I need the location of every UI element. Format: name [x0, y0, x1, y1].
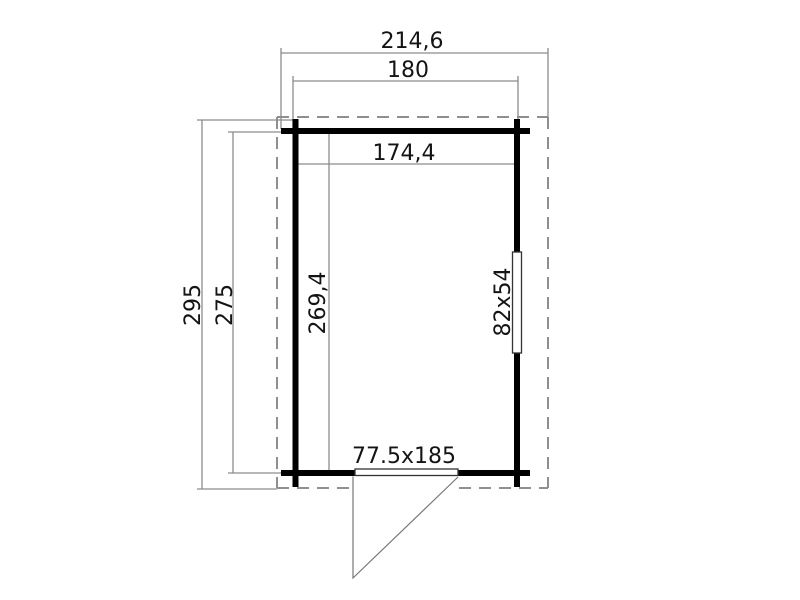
drawing-canvas: 214,6 180 174,4 295 275 269,4 82x54 77.5… [0, 0, 800, 600]
dim-label-wall-depth: 275 [213, 284, 238, 326]
dim-label-inner-depth: 269,4 [306, 272, 331, 335]
door [353, 469, 458, 578]
dim-label-wall-width: 180 [387, 58, 429, 83]
dim-label-door-size: 77.5x185 [352, 444, 456, 469]
dim-label-overall-depth: 295 [181, 284, 206, 326]
dim-label-overall-width: 214,6 [381, 29, 444, 54]
dimension-labels: 214,6 180 174,4 295 275 269,4 82x54 77.5… [181, 29, 516, 469]
door-swing [353, 477, 458, 579]
floor-plan-drawing: 214,6 180 174,4 295 275 269,4 82x54 77.5… [0, 0, 800, 600]
dim-label-window-size: 82x54 [491, 267, 516, 336]
dim-label-inner-width: 174,4 [373, 141, 436, 166]
door-threshold [355, 469, 458, 476]
